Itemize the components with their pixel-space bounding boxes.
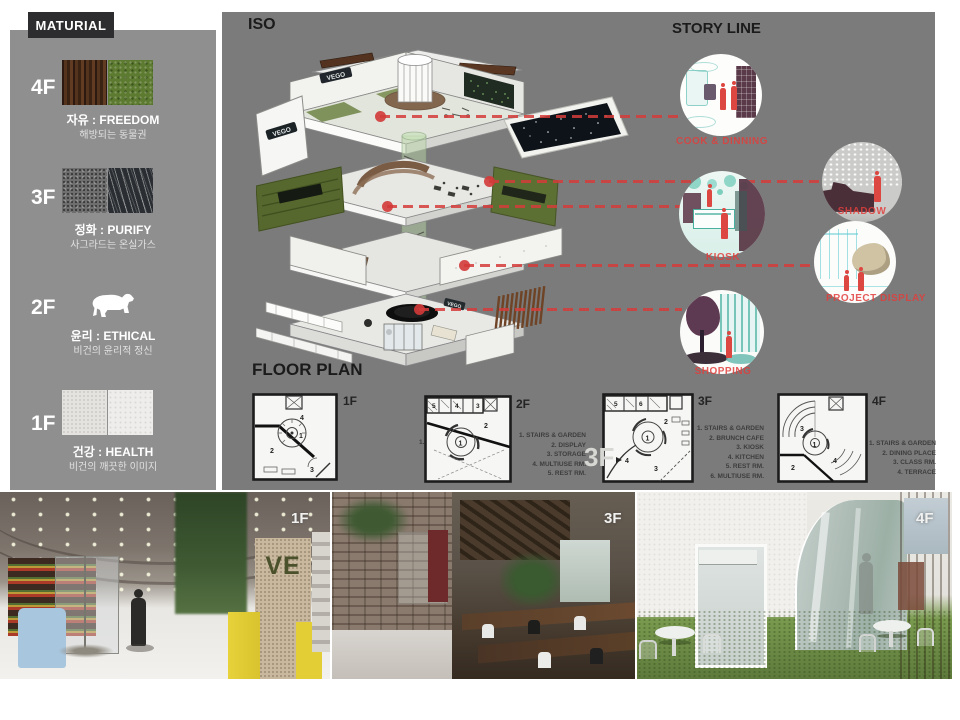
story-vignette-project-display (814, 221, 896, 303)
story-label-cook-dinning: COOK & DINNING (676, 136, 768, 147)
connector-cook-dinning (380, 115, 680, 118)
bright-window (560, 540, 610, 602)
photo-3f-interior: 3F (332, 492, 635, 679)
stairs-above (460, 500, 570, 560)
marble-base (332, 630, 452, 679)
connector-dot (459, 260, 470, 271)
story-vignette-kiosk (679, 171, 765, 257)
storyline-title: STORY LINE (672, 20, 761, 37)
svg-text:3: 3 (476, 403, 480, 410)
floor-plan-1f: 1 2 3 4 (252, 393, 338, 481)
red-banner (428, 530, 448, 602)
material-header: MATURIAL (28, 12, 114, 38)
story-label-kiosk: KIOSK (690, 252, 756, 263)
legend-4f: 1. STAIRS & GARDEN2. DINING PLACE3. CLAS… (836, 439, 936, 477)
legend-2f: 1. STAIRS & GARDEN2. DISPLAY3. STORAGE4.… (446, 431, 586, 479)
material-swatch-rain (108, 168, 153, 213)
indoor-tree (500, 554, 564, 606)
plan-label-1f: 1F (343, 394, 357, 408)
material-swatch-plaster (62, 390, 107, 435)
wire-chair (859, 634, 876, 652)
legend-3f: 1. STAIRS & GARDEN2. BRUNCH CAFE3. KIOSK… (664, 424, 764, 481)
red-planter (898, 562, 924, 610)
wood-table (478, 631, 635, 664)
story-label-project-display: PROJECT DISPLAY (826, 293, 918, 304)
material-desc-2f: 비건의 윤리적 정신 (10, 342, 216, 357)
yellow-counter (228, 612, 260, 679)
polar-bear-icon (84, 287, 136, 319)
connector-shadow (489, 180, 822, 183)
exploded-iso-drawing: VEGO VEGO (256, 36, 648, 366)
wire-chair (917, 628, 934, 646)
photo-4f-terrace: 4F (637, 492, 952, 679)
wire-chair (703, 634, 721, 653)
svg-text:1: 1 (813, 442, 817, 449)
plan-label-3f: 3F (698, 394, 712, 408)
story-label-shopping: SHOPPING (690, 366, 756, 377)
wire-chair (639, 640, 657, 659)
legend-item: 4. MULTIUSE RM. (446, 460, 586, 470)
svg-text:3: 3 (654, 466, 658, 473)
plan-label-4f: 4F (872, 394, 886, 408)
iso-title: ISO (248, 16, 276, 34)
legend-item: 3. KIOSK (664, 443, 764, 453)
ve-sign-text: VE (255, 552, 311, 581)
legend-item: 3. CLASS RM. (836, 458, 936, 468)
person-silhouette (131, 598, 146, 646)
connector-project-display (464, 264, 816, 267)
photo-label-3f: 3F (604, 510, 622, 527)
legend-item: 1. STAIRS & GARDEN (664, 424, 764, 434)
stair-edge (312, 532, 330, 652)
svg-text:1: 1 (299, 433, 303, 440)
svg-text:4: 4 (455, 403, 459, 410)
svg-text:2: 2 (791, 465, 795, 472)
photo-1f-lobby: VE 1F (0, 492, 330, 679)
connector-dot (484, 176, 495, 187)
svg-text:6: 6 (639, 401, 643, 408)
floor-label-1f: 1F (31, 412, 56, 436)
connector-dot (375, 111, 386, 122)
material-swatch-concrete (62, 168, 107, 213)
story-vignette-cook-dinning (680, 54, 762, 136)
connector-shopping (419, 308, 682, 311)
photo-label-1f: 1F (291, 510, 309, 527)
floor-label-2f: 2F (31, 296, 56, 320)
floorplan-overlay-3f: 3F (584, 442, 614, 473)
svg-text:5: 5 (614, 401, 618, 408)
legend-item: 4. TERRACE (836, 468, 936, 478)
legend-item: 2. DINING PLACE (836, 449, 936, 459)
legend-item: 2. DISPLAY (446, 441, 586, 451)
presentation-board: MATURIAL 4F 자유 : FREEDOM 해방되는 동물권 3F 정화 … (0, 0, 960, 720)
legend-item: 3. STORAGE (446, 450, 586, 460)
svg-text:3: 3 (800, 426, 804, 433)
legend-item: 5. REST RM. (446, 469, 586, 479)
floor-label-3f: 3F (31, 186, 56, 210)
svg-text:2: 2 (270, 448, 274, 455)
material-desc-3f: 사그라드는 온실가스 (10, 236, 216, 251)
legend-item: 1. STAIRS & GARDEN (446, 431, 586, 441)
plan-label-2f: 2F (516, 397, 530, 411)
svg-text:4: 4 (300, 415, 304, 422)
svg-text:1: 1 (646, 436, 650, 443)
floor-label-4f: 4F (31, 76, 56, 100)
material-title: MATURIAL (36, 18, 107, 33)
material-swatch-wood (62, 60, 107, 105)
connector-dot (382, 201, 393, 212)
green-wall (175, 492, 247, 614)
material-swatch-plaster-white (108, 390, 153, 435)
photo-label-4f: 4F (916, 510, 934, 527)
person-silhouette (859, 562, 873, 614)
material-desc-1f: 비건의 깨끗한 이미지 (10, 458, 216, 473)
legend-item: 5. REST RM. (664, 462, 764, 472)
svg-text:2: 2 (484, 423, 488, 430)
legend-item: 6. MULTIUSE RM. (664, 472, 764, 482)
blue-tub (18, 608, 66, 668)
legend-item: 1. STAIRS & GARDEN (836, 439, 936, 449)
legend-item: 2. BRUNCH CAFE (664, 434, 764, 444)
svg-text:5: 5 (432, 403, 436, 410)
connector-dot (414, 304, 425, 315)
material-swatch-grass (108, 60, 153, 105)
svg-text:3: 3 (310, 467, 314, 474)
story-label-shadow: SHADOW (824, 206, 900, 217)
connector-kiosk (387, 205, 681, 208)
story-vignette-shopping (680, 290, 764, 374)
svg-text:4: 4 (625, 458, 629, 465)
legend-item: 4. KITCHEN (664, 453, 764, 463)
material-desc-4f: 해방되는 동물권 (10, 126, 216, 141)
